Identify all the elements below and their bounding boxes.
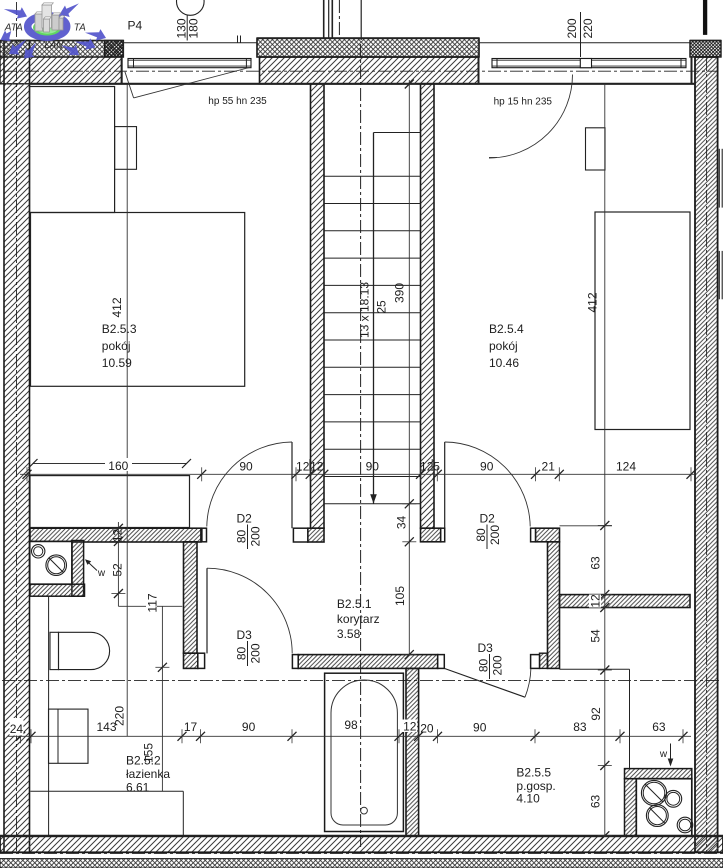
- svg-text:160: 160: [108, 459, 128, 473]
- svg-text:B2.5.5: B2.5.5: [516, 766, 551, 780]
- svg-text:24: 24: [10, 722, 24, 736]
- svg-text:124: 124: [616, 459, 636, 473]
- svg-text:B2.5.1: B2.5.1: [337, 597, 372, 611]
- svg-text:200: 200: [249, 643, 263, 663]
- svg-text:D3: D3: [237, 628, 253, 642]
- svg-text:5: 5: [433, 459, 440, 473]
- svg-text:63: 63: [652, 720, 666, 734]
- svg-text:80: 80: [474, 528, 488, 542]
- svg-text:hp 55 hn 235: hp 55 hn 235: [208, 96, 267, 107]
- svg-text:21: 21: [542, 459, 556, 473]
- svg-text:12: 12: [310, 459, 324, 473]
- svg-text:90: 90: [239, 459, 253, 473]
- svg-text:20: 20: [420, 722, 434, 736]
- svg-text:B2.5.2: B2.5.2: [126, 754, 161, 768]
- svg-text:117: 117: [145, 593, 159, 612]
- svg-text:105: 105: [393, 586, 407, 606]
- svg-text:6.61: 6.61: [126, 781, 150, 795]
- svg-text:80: 80: [235, 647, 249, 661]
- svg-text:hp 15 hn 235: hp 15 hn 235: [494, 97, 553, 108]
- svg-text:80: 80: [235, 530, 249, 544]
- svg-text:52: 52: [110, 563, 124, 577]
- svg-text:90: 90: [473, 721, 487, 735]
- svg-text:12: 12: [420, 459, 434, 473]
- svg-text:90: 90: [480, 459, 494, 473]
- svg-text:12: 12: [296, 459, 310, 473]
- svg-text:P4: P4: [128, 19, 143, 33]
- svg-text:10.46: 10.46: [489, 356, 519, 370]
- svg-text:25: 25: [375, 300, 389, 314]
- svg-text:12: 12: [110, 529, 124, 543]
- svg-text:200: 200: [565, 18, 579, 38]
- svg-text:B2.5.3: B2.5.3: [102, 322, 137, 336]
- svg-text:ŁAN: ŁAN: [45, 40, 64, 51]
- svg-text:63: 63: [589, 556, 603, 570]
- svg-text:korytarz: korytarz: [337, 612, 380, 626]
- svg-text:180: 180: [187, 18, 201, 38]
- svg-text:w: w: [659, 749, 668, 760]
- svg-text:54: 54: [589, 629, 603, 643]
- svg-text:200: 200: [249, 526, 263, 546]
- svg-text:200: 200: [491, 655, 505, 675]
- svg-text:412: 412: [586, 292, 600, 312]
- svg-text:98: 98: [344, 718, 358, 732]
- svg-text:TA: TA: [74, 23, 86, 34]
- svg-text:90: 90: [242, 720, 256, 734]
- svg-text:83: 83: [573, 720, 587, 734]
- svg-text:200: 200: [488, 525, 502, 545]
- svg-text:3.58: 3.58: [337, 627, 361, 641]
- svg-text:D2: D2: [480, 512, 496, 526]
- svg-text:63: 63: [589, 795, 603, 809]
- svg-text:12: 12: [589, 594, 603, 608]
- svg-text:17: 17: [184, 720, 198, 734]
- svg-text:D3: D3: [478, 641, 494, 655]
- svg-text:80: 80: [477, 659, 491, 673]
- svg-text:90: 90: [366, 459, 380, 473]
- svg-text:390: 390: [393, 283, 407, 303]
- svg-text:pokój: pokój: [102, 339, 131, 353]
- svg-text:92: 92: [589, 707, 603, 721]
- svg-text:B2.5.4: B2.5.4: [489, 322, 524, 336]
- svg-text:12: 12: [403, 720, 417, 734]
- svg-text:220: 220: [581, 18, 595, 38]
- svg-text:łazienka: łazienka: [126, 767, 170, 781]
- svg-text:10.59: 10.59: [102, 356, 132, 370]
- svg-text:pokój: pokój: [489, 339, 518, 353]
- svg-text:34: 34: [394, 516, 408, 530]
- svg-text:D2: D2: [237, 512, 253, 526]
- svg-text:412: 412: [110, 297, 124, 317]
- svg-text:4.10: 4.10: [516, 792, 540, 806]
- svg-text:13 x 18.13: 13 x 18.13: [358, 282, 372, 338]
- svg-text:ATA: ATA: [4, 23, 23, 34]
- svg-text:w: w: [97, 568, 106, 579]
- svg-text:220: 220: [113, 706, 127, 726]
